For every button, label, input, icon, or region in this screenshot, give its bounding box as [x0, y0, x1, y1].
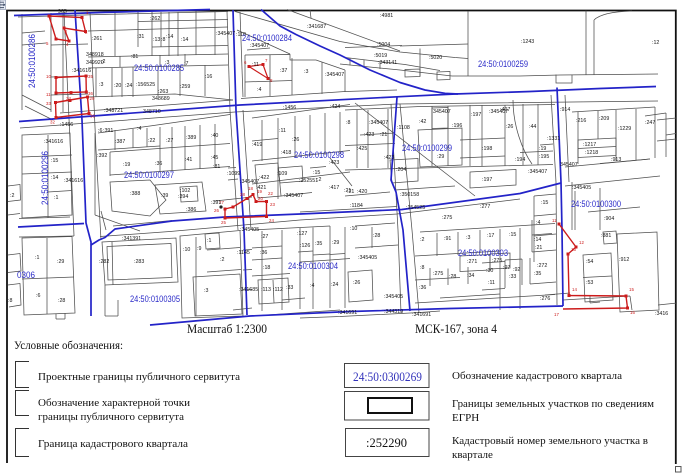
- svg-text:24: 24: [269, 218, 274, 223]
- svg-text::127: :127: [297, 231, 307, 237]
- svg-text::13: :13: [153, 37, 160, 43]
- svg-text::29: :29: [332, 240, 339, 246]
- svg-text:квартале: квартале: [452, 449, 493, 461]
- svg-text::386: :386: [186, 207, 196, 213]
- svg-text:34: 34: [66, 96, 71, 101]
- svg-text::345405: :345405: [384, 294, 403, 300]
- svg-text::31: :31: [137, 34, 144, 40]
- svg-text:Проектные границы публичного с: Проектные границы публичного сервитута: [38, 371, 240, 383]
- svg-text::4: :4: [536, 220, 540, 226]
- svg-text:24:50:0100303: 24:50:0100303: [458, 248, 508, 258]
- svg-text::198: :198: [482, 146, 492, 152]
- svg-text::14: :14: [181, 37, 188, 43]
- svg-text::392: :392: [97, 153, 107, 159]
- svg-text::423: :423: [364, 132, 374, 138]
- svg-text:24:50:0100298: 24:50:0100298: [294, 150, 344, 160]
- svg-text::194: :194: [515, 157, 525, 163]
- svg-text::197: :197: [482, 177, 492, 183]
- svg-text::881: :881: [601, 233, 611, 239]
- svg-text:32: 32: [50, 120, 55, 125]
- svg-text::341685: :341685: [239, 287, 258, 293]
- svg-text::275: :275: [442, 215, 452, 221]
- svg-text:24:50:0300269: 24:50:0300269: [353, 370, 422, 384]
- svg-text::275: :275: [433, 271, 443, 277]
- svg-text::39: :39: [161, 193, 168, 199]
- svg-text::387: :387: [115, 139, 125, 145]
- svg-text:33: 33: [46, 101, 51, 106]
- svg-text::348721: :348721: [104, 108, 123, 114]
- svg-text::29: :29: [57, 259, 64, 265]
- svg-text::15: :15: [541, 200, 548, 206]
- svg-text::341691: :341691: [412, 312, 431, 318]
- svg-text::1: :1: [207, 238, 211, 244]
- svg-text::262: :262: [150, 16, 160, 22]
- svg-text::345407: :345407: [240, 179, 259, 185]
- svg-text::420: :420: [357, 189, 367, 195]
- svg-text::10: :10: [350, 226, 357, 232]
- svg-text::259: :259: [180, 84, 190, 90]
- svg-text::81: :81: [213, 164, 220, 170]
- svg-text::904: :904: [604, 216, 614, 222]
- svg-text::195: :195: [539, 154, 549, 160]
- svg-text:29: 29: [90, 96, 95, 101]
- svg-text::45: :45: [211, 155, 218, 161]
- svg-text:345407: 345407: [560, 162, 578, 168]
- svg-text:24:50:0100284: 24:50:0100284: [242, 33, 292, 43]
- svg-text:348689: 348689: [152, 96, 170, 102]
- svg-text::3: :3: [466, 235, 470, 241]
- svg-text::14: :14: [51, 175, 58, 181]
- svg-text::112: :112: [273, 287, 283, 293]
- svg-text:28: 28: [240, 192, 245, 197]
- svg-text::36: :36: [155, 161, 162, 167]
- svg-text::27: :27: [166, 138, 173, 144]
- svg-text::4: :4: [310, 283, 314, 289]
- svg-text::345407: :345407: [216, 31, 235, 37]
- svg-text::11: :11: [252, 62, 259, 68]
- svg-text::28: :28: [449, 274, 456, 280]
- svg-text::33: :33: [286, 285, 293, 291]
- svg-text::18: :18: [263, 265, 270, 271]
- svg-text::35: :35: [315, 241, 322, 247]
- svg-text::912: :912: [619, 257, 629, 263]
- svg-text::26: :26: [353, 280, 360, 286]
- svg-text::1108: :1108: [397, 125, 410, 131]
- svg-text::425: :425: [357, 146, 367, 152]
- svg-text:345407: 345407: [433, 109, 451, 115]
- svg-text::4: :4: [257, 87, 261, 93]
- svg-text::6: :6: [98, 128, 102, 134]
- svg-text::1145: :1145: [237, 250, 250, 256]
- svg-text::156525: :156525: [136, 82, 155, 88]
- svg-text::197: :197: [471, 112, 481, 118]
- svg-text::345407: :345407: [369, 120, 388, 126]
- svg-text::42: :42: [419, 119, 426, 125]
- svg-text::17: :17: [487, 233, 494, 239]
- svg-text::34: :34: [467, 273, 474, 279]
- svg-text::20: :20: [114, 83, 121, 89]
- svg-text::5019: :5019: [374, 53, 387, 59]
- svg-text::350158: :350158: [400, 192, 419, 198]
- svg-text::345407: :345407: [284, 193, 303, 199]
- svg-text:24:50:0100285: 24:50:0100285: [134, 63, 184, 73]
- svg-text:Условные обозначения:: Условные обозначения:: [14, 340, 123, 352]
- svg-text::3416: :3416: [655, 311, 668, 317]
- svg-text::271: :271: [467, 259, 477, 265]
- svg-text::424: :424: [330, 104, 340, 110]
- svg-text::15: :15: [313, 170, 320, 176]
- svg-text::341391: :341391: [122, 236, 141, 242]
- svg-text::24: :24: [331, 282, 338, 288]
- svg-text:18: 18: [248, 186, 253, 191]
- svg-text:26: 26: [214, 208, 219, 213]
- svg-text::30: :30: [486, 268, 493, 274]
- svg-text::8: :8: [420, 265, 424, 271]
- svg-text:ЕГРН: ЕГРН: [452, 412, 479, 424]
- svg-text::10: :10: [183, 247, 190, 253]
- svg-text::1217: :1217: [583, 142, 596, 148]
- svg-text::418: :418: [281, 150, 291, 156]
- svg-text::2: :2: [220, 257, 224, 263]
- svg-text::21: :21: [535, 245, 542, 251]
- svg-text::343141: :343141: [378, 60, 397, 66]
- svg-text:348918: 348918: [86, 52, 104, 58]
- svg-text::3: :3: [204, 288, 208, 294]
- svg-text::22: :22: [148, 138, 155, 144]
- svg-text::913: :913: [611, 157, 621, 163]
- svg-text::1: :1: [35, 255, 39, 261]
- svg-text:12: 12: [579, 240, 584, 245]
- svg-text::19: :19: [539, 146, 546, 152]
- svg-text::216: :216: [576, 118, 586, 124]
- svg-text::9: :9: [197, 246, 201, 252]
- svg-text::389: :389: [186, 135, 196, 141]
- svg-text::422: :422: [259, 175, 269, 181]
- svg-text::21: :21: [380, 132, 387, 138]
- svg-text::14: :14: [166, 34, 173, 40]
- svg-text:24:50:0100299: 24:50:0100299: [402, 143, 452, 153]
- svg-text::423: :423: [384, 155, 394, 161]
- svg-text::109: :109: [277, 171, 287, 177]
- svg-text::7: :7: [184, 61, 188, 67]
- svg-text::11: :11: [488, 280, 495, 286]
- svg-text::37: :37: [280, 68, 287, 74]
- svg-text::283: :283: [134, 259, 144, 265]
- svg-text::1: :1: [54, 195, 58, 201]
- svg-text:24:50:0100286: 24:50:0100286: [27, 34, 37, 88]
- svg-text::277: :277: [480, 204, 490, 210]
- svg-text::8: :8: [8, 298, 12, 304]
- svg-text::15: :15: [51, 158, 58, 164]
- svg-text::28: :28: [373, 233, 380, 239]
- svg-text::341616: :341616: [72, 68, 91, 74]
- svg-text::1456: :1456: [283, 105, 296, 111]
- svg-text:24:50:0100296: 24:50:0100296: [40, 151, 50, 205]
- svg-text::344319: :344319: [384, 309, 403, 315]
- svg-text::282: :282: [99, 259, 109, 265]
- svg-text::15: :15: [509, 232, 516, 238]
- svg-text:905: 905: [58, 9, 67, 15]
- svg-text::388: :388: [130, 191, 140, 197]
- svg-text::4981: :4981: [380, 13, 393, 19]
- svg-text::417: :417: [329, 185, 339, 191]
- svg-text::81: :81: [131, 54, 138, 60]
- svg-text:17: 17: [554, 312, 559, 317]
- svg-text:22: 22: [268, 191, 273, 196]
- svg-text::345405: :345405: [240, 227, 259, 233]
- svg-text::1229: :1229: [618, 126, 631, 132]
- svg-text:Обозначение кадастрового кварт: Обозначение кадастрового квартала: [452, 370, 622, 382]
- svg-text:24:50:0100304: 24:50:0100304: [288, 261, 338, 271]
- svg-text:15: 15: [629, 287, 634, 292]
- svg-text::2: :2: [101, 59, 105, 65]
- svg-text::341616: :341616: [64, 178, 83, 184]
- svg-text::36: :36: [419, 285, 426, 291]
- svg-text::341616: :341616: [44, 139, 63, 145]
- svg-text::92: :92: [513, 267, 520, 273]
- svg-text:24:50:0100300: 24:50:0100300: [571, 199, 621, 209]
- svg-text::5020: :5020: [429, 55, 442, 61]
- svg-text::204: :204: [396, 167, 406, 173]
- svg-text::8: :8: [346, 120, 350, 126]
- svg-text::6: :6: [36, 293, 40, 299]
- svg-text::54: :54: [586, 259, 593, 265]
- svg-text::3: :3: [304, 69, 308, 75]
- svg-text::209: :209: [599, 116, 609, 122]
- svg-text::1184: :1184: [350, 203, 363, 209]
- svg-text::345405: :345405: [572, 185, 591, 191]
- svg-text::423: :423: [329, 160, 339, 166]
- svg-text::91: :91: [444, 236, 451, 242]
- svg-text::263: :263: [158, 89, 168, 95]
- svg-text:Обозначение характерной точки: Обозначение характерной точки: [38, 397, 190, 409]
- svg-text:24:50:0100305: 24:50:0100305: [130, 294, 180, 304]
- svg-text::345407: :345407: [489, 109, 508, 115]
- svg-text:20: 20: [258, 196, 263, 201]
- svg-text::391: :391: [211, 200, 221, 206]
- svg-text::1218: :1218: [585, 150, 598, 156]
- svg-text::391: :391: [103, 128, 113, 134]
- svg-text:Кадастровый номер земельного у: Кадастровый номер земельного участка в: [452, 435, 648, 447]
- svg-text:11: 11: [552, 218, 557, 223]
- svg-text::29: :29: [437, 154, 444, 160]
- svg-text::19: :19: [123, 162, 130, 168]
- svg-text::36: :36: [260, 250, 267, 256]
- svg-text::914: :914: [560, 107, 570, 113]
- svg-text:11: 11: [46, 92, 51, 97]
- svg-text::24: :24: [125, 83, 132, 89]
- svg-text::26: :26: [506, 124, 513, 130]
- svg-text::1243: :1243: [521, 39, 534, 45]
- svg-text::247: :247: [645, 120, 655, 126]
- svg-text::5004: :5004: [377, 42, 390, 48]
- svg-text::35: :35: [534, 271, 541, 277]
- svg-text::275: :275: [492, 258, 502, 264]
- svg-text::16: :16: [205, 74, 212, 80]
- svg-text::341687: :341687: [307, 24, 326, 30]
- svg-text::28: :28: [58, 298, 65, 304]
- svg-text:24:50:0100297: 24:50:0100297: [124, 170, 174, 180]
- svg-text::261: :261: [92, 36, 102, 42]
- svg-text::1456: :1456: [60, 122, 73, 128]
- svg-text:16: 16: [630, 310, 635, 315]
- svg-text::21: :21: [344, 188, 351, 194]
- svg-text::44: :44: [529, 124, 536, 130]
- svg-text:МСК-167, зона 4: МСК-167, зона 4: [415, 321, 497, 336]
- svg-text::196: :196: [452, 123, 462, 129]
- svg-text::40: :40: [211, 133, 218, 139]
- svg-text:14: 14: [572, 287, 577, 292]
- svg-text:границы публичного сервитута: границы публичного сервитута: [38, 411, 184, 423]
- svg-text::11: :11: [279, 128, 286, 134]
- svg-text::252290: :252290: [366, 436, 407, 450]
- svg-text::26: :26: [292, 137, 299, 143]
- svg-text::345407: :345407: [528, 169, 547, 175]
- svg-text::341691: :341691: [338, 310, 357, 316]
- svg-text:25: 25: [221, 220, 226, 225]
- svg-text::14: :14: [534, 237, 541, 243]
- svg-text::53: :53: [586, 280, 593, 286]
- svg-text::276: :276: [540, 296, 550, 302]
- svg-text::41: :41: [185, 157, 192, 163]
- svg-text::4: :4: [137, 126, 141, 132]
- svg-text::1099: :1099: [227, 171, 240, 177]
- svg-text::97: :97: [503, 265, 510, 271]
- svg-text:10: 10: [46, 74, 51, 79]
- svg-text:0306: 0306: [17, 270, 35, 280]
- svg-text::3: :3: [99, 82, 103, 88]
- svg-text:24:50:0100259: 24:50:0100259: [478, 59, 528, 69]
- svg-text:Масштаб 1:2300: Масштаб 1:2300: [187, 321, 267, 336]
- svg-text:Граница кадастрового квартала: Граница кадастрового квартала: [38, 438, 188, 450]
- svg-text::27: :27: [261, 234, 268, 240]
- svg-text:13: 13: [571, 247, 576, 252]
- svg-text::2: :2: [420, 237, 424, 243]
- svg-text::345407: :345407: [325, 72, 344, 78]
- svg-text::394: :394: [178, 194, 188, 200]
- svg-text::154525: :154525: [406, 205, 425, 211]
- svg-text::421: :421: [256, 185, 266, 191]
- svg-text::126: :126: [300, 243, 310, 249]
- svg-text::419: :419: [252, 142, 262, 148]
- svg-text::2: :2: [10, 193, 14, 199]
- svg-text::8: :8: [161, 37, 165, 43]
- svg-text:30: 30: [90, 114, 95, 119]
- svg-text:35: 35: [88, 74, 93, 79]
- svg-text::1331: :1331: [547, 136, 560, 142]
- svg-text::252551: :252551: [299, 178, 318, 184]
- svg-text::12: :12: [652, 40, 659, 46]
- svg-text:348710: 348710: [143, 109, 161, 115]
- svg-text:Границы земельных участков по: Границы земельных участков по сведениям: [452, 398, 654, 410]
- svg-text::272: :272: [537, 263, 547, 269]
- svg-text:23: 23: [270, 202, 275, 207]
- svg-text::113: :113: [261, 287, 271, 293]
- svg-text::33: :33: [509, 274, 516, 280]
- svg-text::345407: :345407: [250, 43, 269, 49]
- svg-text::345405: :345405: [358, 255, 377, 261]
